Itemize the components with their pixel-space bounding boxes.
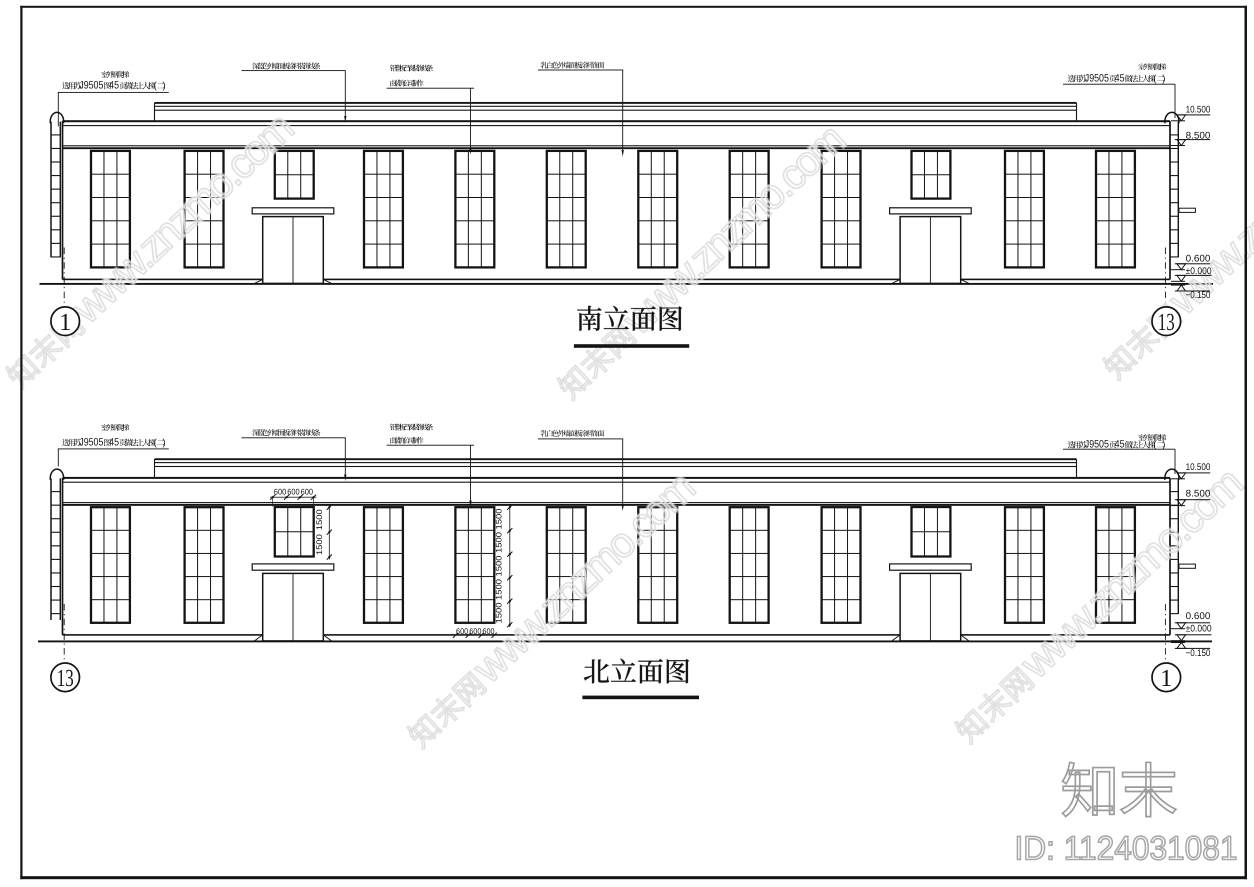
svg-text:J9505: J9505 (79, 80, 103, 92)
svg-text:600: 600 (456, 627, 469, 636)
svg-text:8.500: 8.500 (1186, 130, 1211, 141)
svg-text:±0.000: ±0.000 (1186, 624, 1212, 635)
svg-text:1: 1 (1160, 665, 1172, 692)
svg-text:13: 13 (57, 665, 74, 692)
svg-text:J9505: J9505 (1085, 73, 1109, 85)
svg-text:−0.150: −0.150 (1186, 648, 1211, 659)
svg-text:8.500: 8.500 (1186, 488, 1211, 499)
svg-text:0.600: 0.600 (1186, 254, 1211, 265)
svg-text:45: 45 (109, 437, 119, 449)
svg-text:ID: 1124031081: ID: 1124031081 (1015, 831, 1238, 868)
svg-text:600: 600 (469, 627, 482, 636)
svg-text:0.600: 0.600 (1186, 611, 1211, 622)
svg-text:): ) (1162, 74, 1165, 85)
svg-text:1500: 1500 (495, 531, 504, 553)
svg-text:1500: 1500 (495, 508, 504, 530)
svg-text:−0.150: −0.150 (1186, 290, 1211, 301)
svg-text:600: 600 (274, 488, 287, 497)
svg-text:J9505: J9505 (79, 437, 103, 449)
svg-text:45: 45 (109, 80, 119, 92)
svg-text:45: 45 (1115, 73, 1125, 85)
svg-text:±0.000: ±0.000 (1186, 266, 1212, 277)
svg-text:1: 1 (59, 309, 71, 336)
svg-text:1500: 1500 (495, 578, 504, 600)
svg-text:): ) (163, 438, 166, 449)
svg-text:1500: 1500 (495, 555, 504, 577)
svg-text:): ) (163, 81, 166, 92)
svg-text:10.500: 10.500 (1186, 462, 1211, 473)
svg-text:10.500: 10.500 (1186, 104, 1211, 115)
svg-text:1500: 1500 (315, 534, 324, 556)
svg-text:13: 13 (1158, 309, 1175, 336)
svg-text:1500: 1500 (315, 509, 324, 531)
